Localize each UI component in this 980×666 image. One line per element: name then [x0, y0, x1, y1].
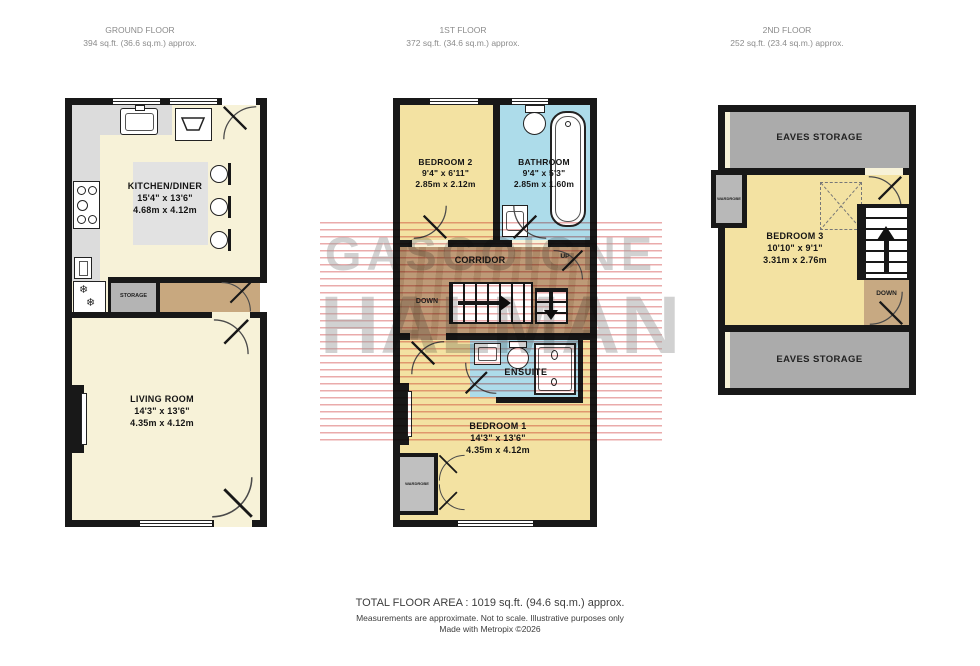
door-opening: [260, 283, 267, 312]
bedroom3-wardrobe: WARDROBE: [711, 170, 747, 228]
patio-door-swing-icon: [210, 475, 254, 519]
kitchen-door-swing-icon: [222, 105, 258, 141]
up-arrow-head: [877, 226, 895, 240]
down-arrow-head: [500, 295, 511, 311]
wall: [578, 340, 583, 403]
ground-floor-header: GROUND FLOOR 394 sq.ft. (36.6 sq.m.) app…: [20, 24, 260, 50]
wardrobe-door-swing-icon: [438, 454, 466, 482]
bedroom1-door-swing-icon: [410, 340, 446, 376]
up-arrow-icon: [884, 240, 889, 274]
chimney-slot: [407, 391, 412, 437]
living-room-label: LIVING ROOM 14'3" x 13'6" 4.35m x 4.12m: [82, 394, 242, 430]
door-opening: [214, 520, 252, 527]
wall: [725, 325, 909, 332]
second-floor-title: 2ND FLOOR: [667, 24, 907, 37]
eaves-storage-bottom: EAVES STORAGE: [730, 332, 909, 388]
window: [113, 98, 160, 105]
up-stair-arrow-head: [544, 310, 558, 320]
eaves-storage-bottom-label: EAVES STORAGE: [730, 354, 909, 365]
second-floor-header: 2ND FLOOR 252 sq.ft. (23.4 sq.m.) approx…: [667, 24, 907, 50]
wall: [400, 240, 412, 247]
eaves-storage-top-label: EAVES STORAGE: [730, 132, 909, 143]
dishwasher-icon: [74, 257, 92, 279]
ground-floor-plan: ❄ ❄ KITCHEN/DINER 15'4" x 13'6" 4.68m x …: [65, 98, 267, 527]
utility-basin-icon: [175, 108, 212, 141]
wall: [496, 397, 583, 403]
kitchen-sink-icon: [120, 108, 158, 135]
living-room-door-swing-icon: [212, 318, 250, 356]
corridor-label: CORRIDOR: [420, 255, 540, 267]
bedroom1-label: BEDROOM 1 14'3" x 13'6" 4.35m x 4.12m: [418, 421, 578, 457]
down-arrow-icon: [458, 301, 500, 305]
bedroom1-wardrobe-label: WARDROBE: [400, 481, 434, 486]
wall: [903, 168, 909, 175]
up-stair-arrow-icon: [549, 290, 553, 310]
bedroom2-door-swing-icon: [412, 204, 448, 240]
bedroom2-label: BEDROOM 2 9'4" x 6'11" 2.85m x 2.12m: [398, 157, 493, 191]
footer: TOTAL FLOOR AREA : 1019 sq.ft. (94.6 sq.…: [240, 597, 740, 634]
ground-floor-area: 394 sq.ft. (36.6 sq.m.) approx.: [20, 37, 260, 50]
first-floor-area: 372 sq.ft. (34.6 sq.m.) approx.: [343, 37, 583, 50]
window: [140, 520, 212, 527]
toilet-icon: [523, 112, 546, 135]
bedroom3-label: BEDROOM 3 10'10" x 9'1" 3.31m x 2.76m: [720, 231, 870, 267]
wall: [548, 240, 590, 247]
first-floor-plan: BEDROOM 2 9'4" x 6'11" 2.85m x 2.12m BAT…: [393, 98, 597, 527]
wall: [400, 333, 410, 340]
wall: [72, 312, 212, 318]
window: [170, 98, 217, 105]
second-floor-area: 252 sq.ft. (23.4 sq.m.) approx.: [667, 37, 907, 50]
total-floor-area: TOTAL FLOOR AREA : 1019 sq.ft. (94.6 sq.…: [240, 597, 740, 609]
door-opening: [222, 98, 256, 105]
disclaimer: Measurements are approximate. Not to sca…: [240, 613, 740, 623]
ensuite-toilet-icon: [507, 347, 529, 369]
bathroom-label: BATHROOM 9'4" x 5'3" 2.85m x 1.60m: [498, 157, 590, 191]
first-floor-header: 1ST FLOOR 372 sq.ft. (34.6 sq.m.) approx…: [343, 24, 583, 50]
floorplan-page: GROUND FLOOR 394 sq.ft. (36.6 sq.m.) app…: [0, 0, 980, 666]
bedroom1-wardrobe: WARDROBE: [396, 453, 438, 515]
bathroom-door-swing-icon: [512, 204, 548, 240]
storage-room: STORAGE: [111, 283, 156, 312]
window: [512, 98, 548, 105]
chair-icon: [210, 231, 228, 249]
stairs-down-label: DOWN: [406, 298, 448, 305]
first-floor-title: 1ST FLOOR: [343, 24, 583, 37]
wall: [448, 240, 512, 247]
window: [458, 520, 533, 527]
ensuite-door-swing-icon: [464, 361, 498, 395]
second-floor-plan: EAVES STORAGE WARDROBE BEDROOM 3 10'10" …: [718, 105, 916, 395]
wardrobe-door-swing-icon: [438, 483, 466, 511]
eaves-storage-top: EAVES STORAGE: [730, 112, 909, 168]
credit: Made with Metropix ©2026: [240, 624, 740, 634]
wall: [446, 333, 590, 340]
stair-door-swing-icon: [552, 249, 584, 281]
wall: [250, 312, 260, 318]
ground-floor-title: GROUND FLOOR: [20, 24, 260, 37]
kitchen-label: KITCHEN/DINER 15'4" x 13'6" 4.68m x 4.12…: [90, 181, 240, 217]
front-door-swing-icon: [220, 281, 252, 313]
skylight-icon: [820, 182, 862, 230]
wall: [857, 204, 864, 280]
storage-label: STORAGE: [111, 293, 156, 299]
window: [430, 98, 478, 105]
chair-back: [228, 229, 231, 251]
bedroom3-wardrobe-label: WARDROBE: [716, 196, 742, 201]
landing-door-swing-icon: [868, 290, 904, 326]
